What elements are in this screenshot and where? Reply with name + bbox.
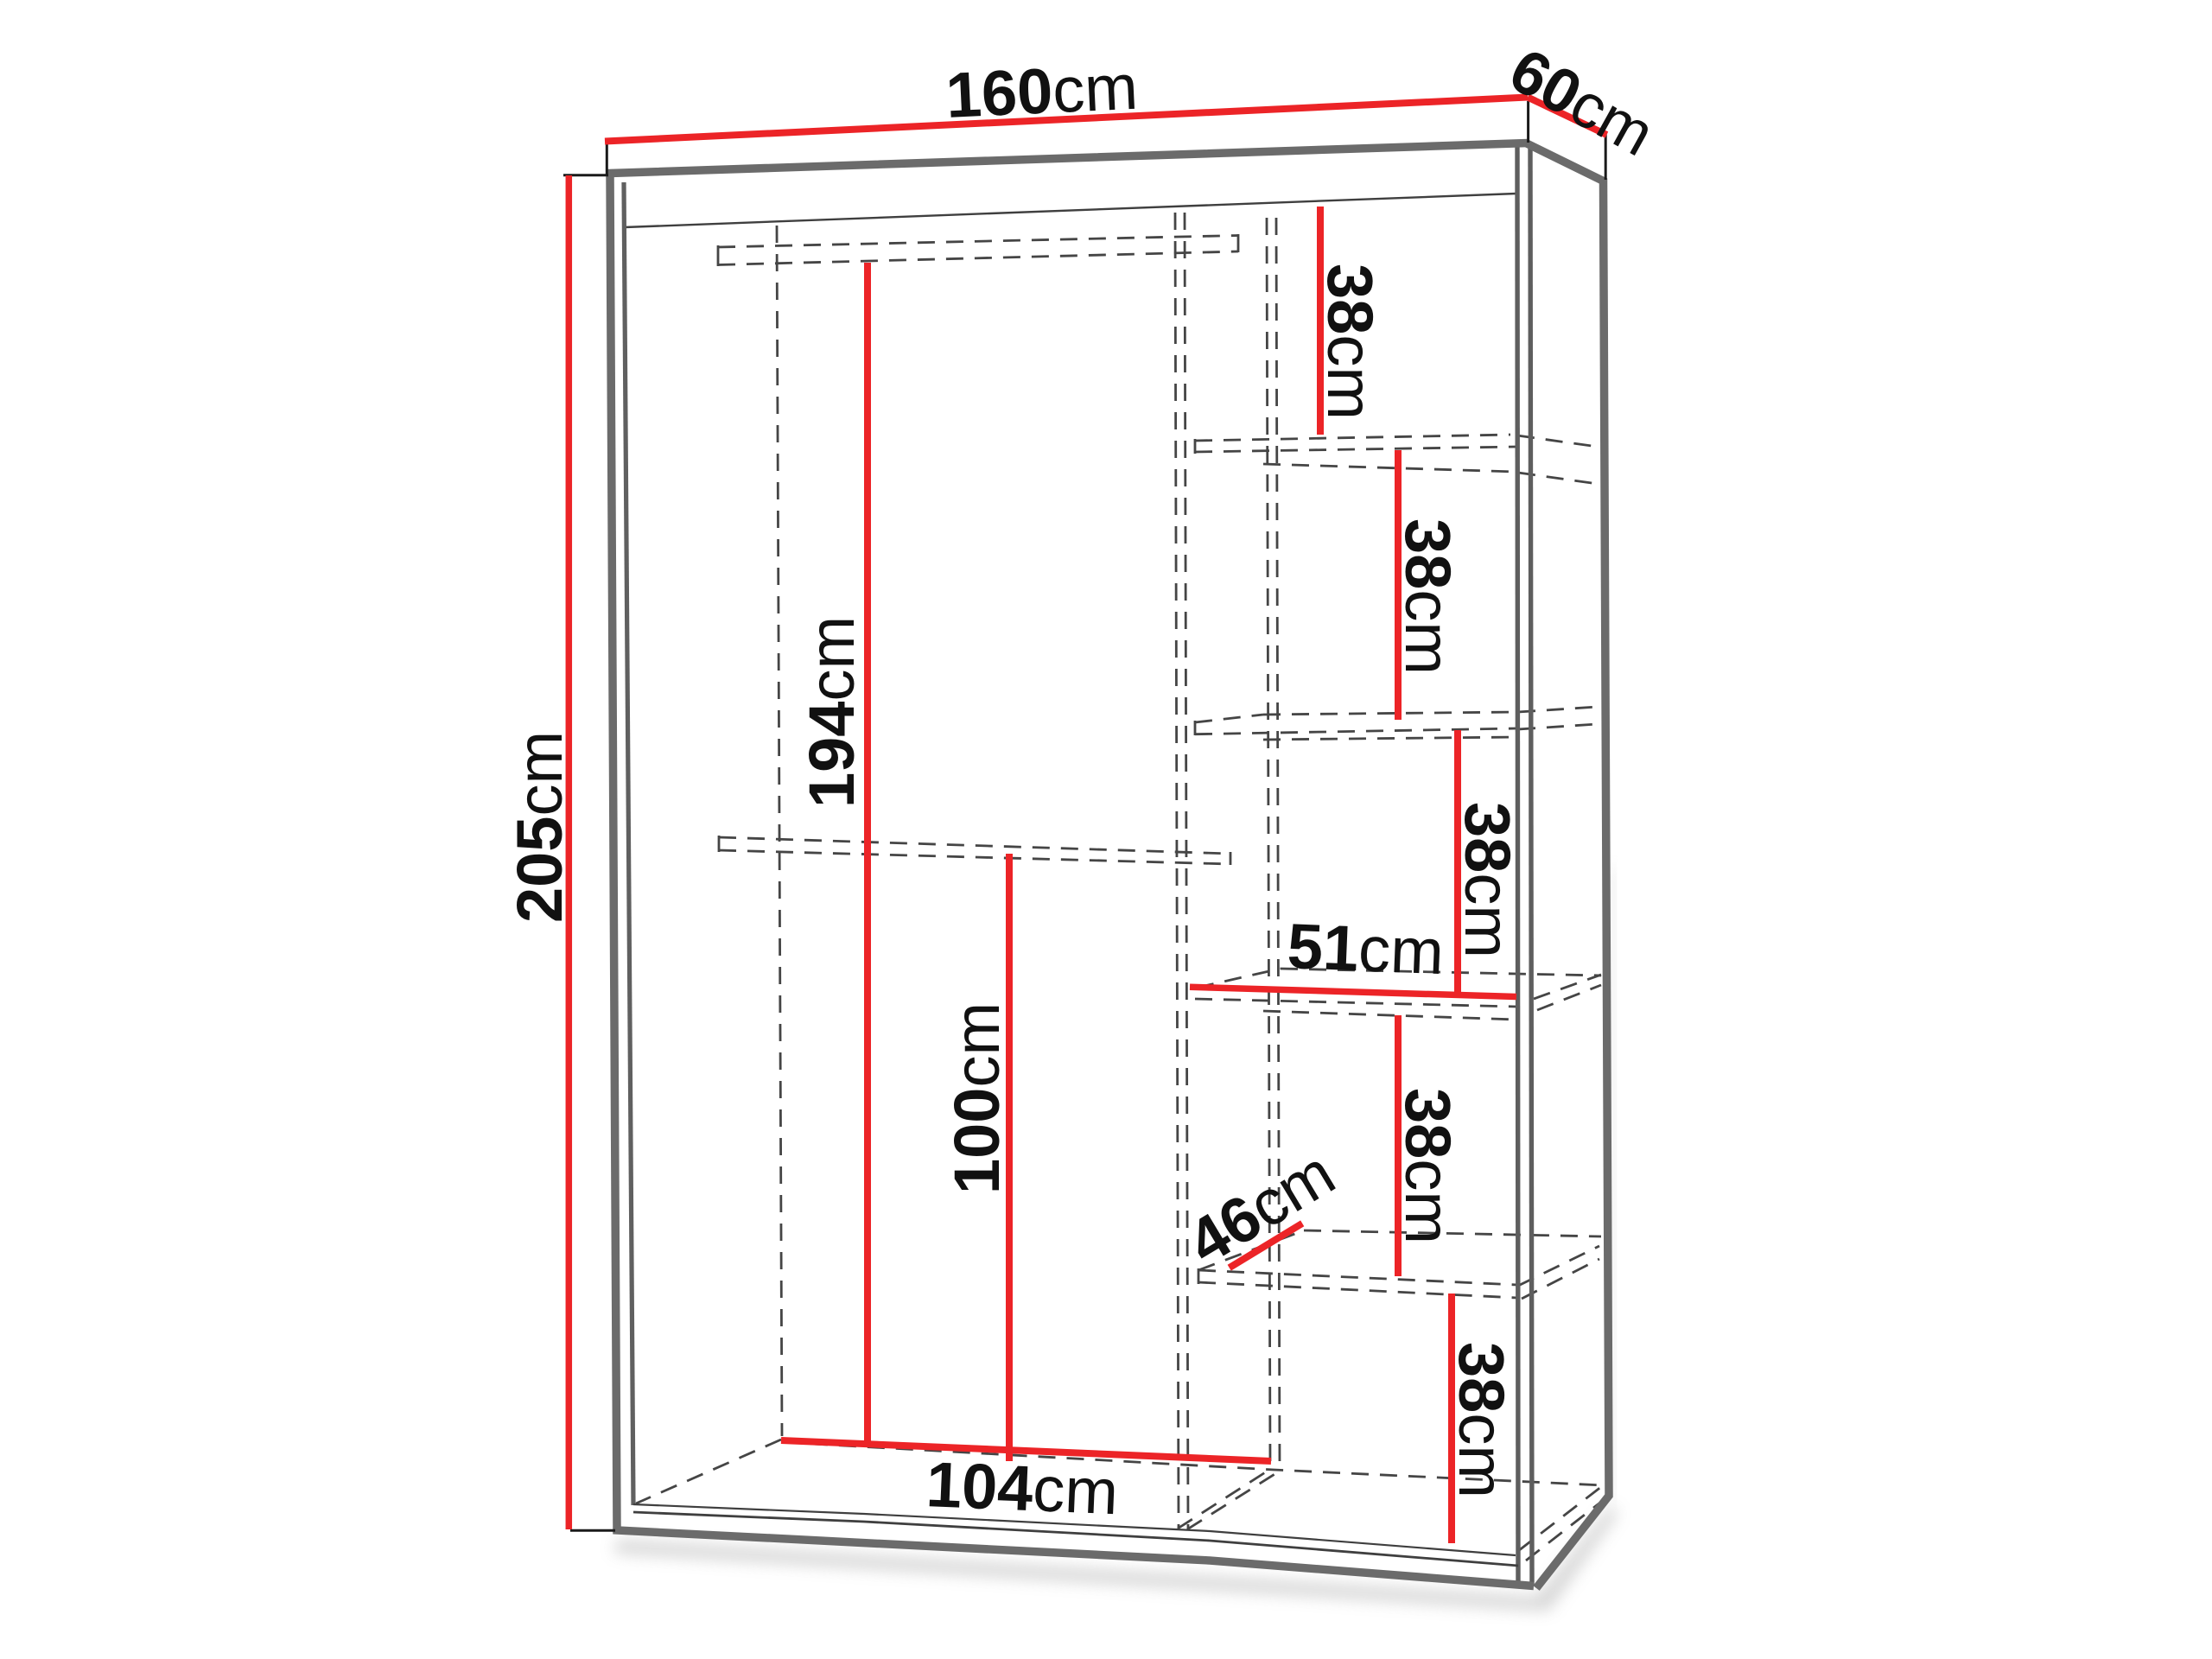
svg-text:38cm: 38cm xyxy=(1446,1342,1517,1498)
svg-text:38cm: 38cm xyxy=(1452,802,1523,958)
svg-text:38cm: 38cm xyxy=(1392,518,1464,675)
svg-text:46cm: 46cm xyxy=(1175,1136,1346,1278)
svg-text:160cm: 160cm xyxy=(944,51,1140,131)
svg-text:100cm: 100cm xyxy=(941,1002,1013,1194)
svg-text:38cm: 38cm xyxy=(1392,1088,1464,1244)
svg-text:104cm: 104cm xyxy=(925,1448,1119,1528)
svg-text:38cm: 38cm xyxy=(1314,264,1386,420)
svg-text:194cm: 194cm xyxy=(796,616,868,808)
svg-text:60cm: 60cm xyxy=(1498,35,1665,169)
svg-text:51cm: 51cm xyxy=(1286,910,1445,988)
svg-text:205cm: 205cm xyxy=(504,731,575,923)
